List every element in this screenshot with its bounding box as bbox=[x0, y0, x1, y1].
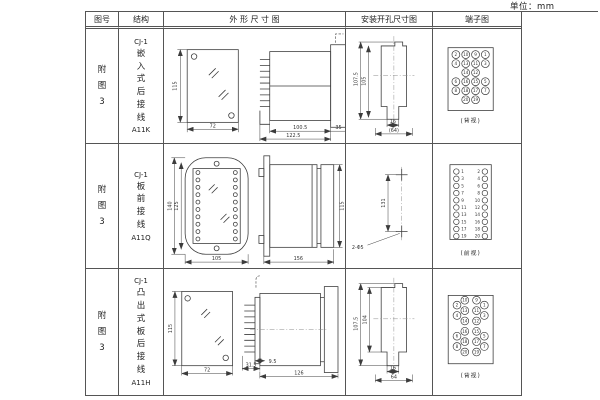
top-rule bbox=[520, 11, 598, 12]
outline-diagram-cell: 115 72 9.5 31.5 126 bbox=[164, 269, 346, 395]
svg-text:2: 2 bbox=[454, 52, 457, 57]
svg-text:2: 2 bbox=[477, 169, 480, 174]
svg-text:1: 1 bbox=[461, 169, 464, 174]
dim-inner-height: 105 bbox=[362, 76, 368, 85]
svg-text:3: 3 bbox=[483, 313, 486, 318]
terminal-drawing-a11h: 2109141311314126161558181772019 (背视) bbox=[434, 270, 521, 394]
header-terminal: 端子图 bbox=[433, 12, 521, 29]
svg-text:17: 17 bbox=[472, 88, 478, 93]
fig-no-cell: 附图3 bbox=[86, 269, 119, 395]
svg-text:13: 13 bbox=[462, 308, 468, 313]
dim-inner-height: 104 bbox=[363, 315, 369, 324]
svg-text:8: 8 bbox=[477, 190, 480, 195]
svg-text:15: 15 bbox=[473, 329, 479, 334]
scanned-spec-page: 单位：mm 图号 结构 外 形 尺 寸 图 安装开孔尺寸图 端子图 附图3 CJ… bbox=[0, 0, 600, 400]
svg-text:20: 20 bbox=[462, 349, 468, 354]
outline-drawing-a11k: 115 72 100.5 122.5 35 bbox=[165, 30, 345, 143]
mounting-diagram-cell: 107.5 104 16 64 bbox=[346, 269, 433, 395]
svg-text:3: 3 bbox=[461, 176, 464, 181]
model-code: A11Q bbox=[131, 234, 150, 242]
dim-hole-span: (64) bbox=[389, 127, 399, 133]
dim-pin-depth: 31.5 bbox=[245, 363, 256, 369]
model-code: A11K bbox=[132, 126, 150, 134]
mount-type-label: 板前接线 bbox=[135, 181, 148, 232]
header-mounting: 安装开孔尺寸图 bbox=[346, 12, 433, 29]
svg-text:10: 10 bbox=[474, 197, 480, 202]
svg-text:12: 12 bbox=[474, 204, 480, 209]
dim-flange-depth: 35 bbox=[335, 125, 341, 131]
outline-drawing-a11q: 140 125 105 115 156 bbox=[165, 145, 345, 268]
dim-total-depth: 122.5 bbox=[286, 133, 300, 139]
dim-body-depth: 126 bbox=[294, 370, 303, 376]
mounting-diagram-cell: 107.5 105 16 (64) bbox=[346, 29, 433, 144]
svg-text:6: 6 bbox=[455, 334, 458, 339]
outline-drawing-a11h: 115 72 9.5 31.5 126 bbox=[165, 270, 345, 394]
svg-text:16: 16 bbox=[462, 329, 468, 334]
svg-text:14: 14 bbox=[462, 318, 468, 323]
svg-text:4: 4 bbox=[454, 61, 457, 66]
dim-front-outer-height: 140 bbox=[167, 201, 173, 210]
outline-diagram-cell: 115 72 100.5 122.5 35 bbox=[164, 29, 346, 144]
svg-text:17: 17 bbox=[473, 339, 479, 344]
model-label: CJ-1 bbox=[134, 277, 148, 285]
svg-text:16: 16 bbox=[474, 219, 480, 224]
svg-text:8: 8 bbox=[454, 88, 457, 93]
spec-table: 图号 结构 外 形 尺 寸 图 安装开孔尺寸图 端子图 附图3 CJ-1 嵌入式… bbox=[85, 11, 522, 396]
terminal-view-label: (前视) bbox=[460, 249, 480, 257]
fig-no-label: 附图3 bbox=[96, 182, 109, 230]
terminal-diagram-cell: 1357911131517192468101214161820 (前视) bbox=[433, 144, 521, 269]
structure-cell: CJ-1 凸出式板后接线 A11H bbox=[119, 269, 164, 395]
terminal-view-label: (背视) bbox=[460, 371, 480, 379]
dim-slot-width: 16 bbox=[390, 119, 396, 125]
svg-text:15: 15 bbox=[472, 79, 478, 84]
model-label: CJ-1 bbox=[134, 171, 148, 179]
svg-text:7: 7 bbox=[484, 88, 487, 93]
svg-text:4: 4 bbox=[477, 176, 480, 181]
terminal-view-label: (背视) bbox=[460, 116, 480, 124]
terminal-drawing-a11k: 2109141311314126161558181772019 (背视) bbox=[434, 30, 521, 143]
dim-outer-height: 107.5 bbox=[354, 317, 360, 331]
svg-text:4: 4 bbox=[455, 313, 458, 318]
svg-text:9: 9 bbox=[474, 52, 477, 57]
hole-note: 2-Φ5 bbox=[352, 245, 364, 251]
header-structure: 结构 bbox=[119, 12, 164, 29]
svg-text:6: 6 bbox=[454, 79, 457, 84]
svg-text:8: 8 bbox=[455, 344, 458, 349]
fig-no-cell: 附图3 bbox=[86, 144, 119, 269]
outline-diagram-cell: 140 125 105 115 156 bbox=[164, 144, 346, 269]
structure-cell: CJ-1 板前接线 A11Q bbox=[119, 144, 164, 269]
svg-text:2: 2 bbox=[455, 303, 458, 308]
svg-text:1: 1 bbox=[484, 52, 487, 57]
svg-text:19: 19 bbox=[461, 233, 467, 238]
fig-no-cell: 附图3 bbox=[86, 29, 119, 144]
model-label: CJ-1 bbox=[134, 38, 148, 46]
mount-type-label: 凸出式板后接线 bbox=[135, 287, 148, 376]
mount-type-label: 嵌入式后接线 bbox=[135, 48, 148, 125]
terminal-diagram-cell: 2109141311314126161558181772019 (背视) bbox=[433, 29, 521, 144]
mounting-drawing-a11k: 107.5 105 16 (64) bbox=[346, 30, 432, 143]
terminal-diagram-cell: 2109141311314126161558181772019 (背视) bbox=[433, 269, 521, 395]
dim-front-width: 72 bbox=[204, 368, 210, 374]
svg-text:5: 5 bbox=[484, 79, 487, 84]
svg-text:16: 16 bbox=[463, 79, 469, 84]
header-outline: 外 形 尺 寸 图 bbox=[164, 12, 346, 29]
svg-text:9: 9 bbox=[461, 197, 464, 202]
svg-text:11: 11 bbox=[461, 204, 467, 209]
terminal-drawing-a11q: 1357911131517192468101214161820 (前视) bbox=[434, 145, 521, 268]
svg-text:18: 18 bbox=[462, 339, 468, 344]
svg-text:14: 14 bbox=[474, 212, 480, 217]
svg-text:11: 11 bbox=[473, 308, 479, 313]
svg-text:17: 17 bbox=[461, 226, 467, 231]
dim-plate-offset: 9.5 bbox=[268, 359, 276, 365]
structure-cell: CJ-1 嵌入式后接线 A11K bbox=[119, 29, 164, 144]
svg-text:5: 5 bbox=[483, 334, 486, 339]
svg-text:1: 1 bbox=[483, 303, 486, 308]
svg-text:19: 19 bbox=[473, 349, 479, 354]
svg-text:13: 13 bbox=[463, 61, 469, 66]
svg-text:18: 18 bbox=[474, 226, 480, 231]
dim-slot-width: 16 bbox=[390, 366, 396, 372]
mounting-drawing-a11q: 131 2-Φ5 bbox=[346, 145, 432, 268]
svg-text:18: 18 bbox=[463, 88, 469, 93]
dim-front-height: 115 bbox=[168, 324, 174, 333]
svg-text:12: 12 bbox=[473, 318, 479, 323]
svg-text:19: 19 bbox=[472, 97, 478, 102]
svg-text:20: 20 bbox=[474, 233, 480, 238]
svg-text:20: 20 bbox=[463, 97, 469, 102]
dim-front-width: 72 bbox=[209, 123, 215, 129]
header-fig-no: 图号 bbox=[86, 12, 119, 29]
svg-text:5: 5 bbox=[461, 183, 464, 188]
dim-front-width: 105 bbox=[211, 256, 220, 262]
svg-text:11: 11 bbox=[472, 61, 478, 66]
dim-hole-spacing: 131 bbox=[381, 198, 387, 207]
svg-text:13: 13 bbox=[461, 212, 467, 217]
svg-text:10: 10 bbox=[462, 298, 468, 303]
fig-no-label: 附图3 bbox=[96, 308, 109, 356]
svg-text:7: 7 bbox=[461, 190, 464, 195]
svg-text:6: 6 bbox=[477, 183, 480, 188]
dim-hole-span: 64 bbox=[391, 374, 397, 380]
dim-outer-height: 107.5 bbox=[354, 72, 360, 86]
mounting-diagram-cell: 131 2-Φ5 bbox=[346, 144, 433, 269]
dim-front-inner-height: 125 bbox=[174, 201, 180, 210]
svg-text:9: 9 bbox=[475, 298, 478, 303]
dim-body-height: 115 bbox=[339, 201, 344, 210]
mounting-drawing-a11h: 107.5 104 16 64 bbox=[346, 270, 432, 394]
svg-text:15: 15 bbox=[461, 219, 467, 224]
svg-text:7: 7 bbox=[483, 344, 486, 349]
svg-text:3: 3 bbox=[484, 61, 487, 66]
svg-text:12: 12 bbox=[472, 70, 478, 75]
model-code: A11H bbox=[132, 379, 151, 387]
dim-front-height: 115 bbox=[172, 81, 178, 90]
dim-body-depth: 100.5 bbox=[293, 125, 307, 131]
svg-text:14: 14 bbox=[463, 70, 469, 75]
svg-text:10: 10 bbox=[463, 52, 469, 57]
fig-no-label: 附图3 bbox=[96, 62, 109, 110]
dim-body-depth: 156 bbox=[293, 256, 302, 262]
